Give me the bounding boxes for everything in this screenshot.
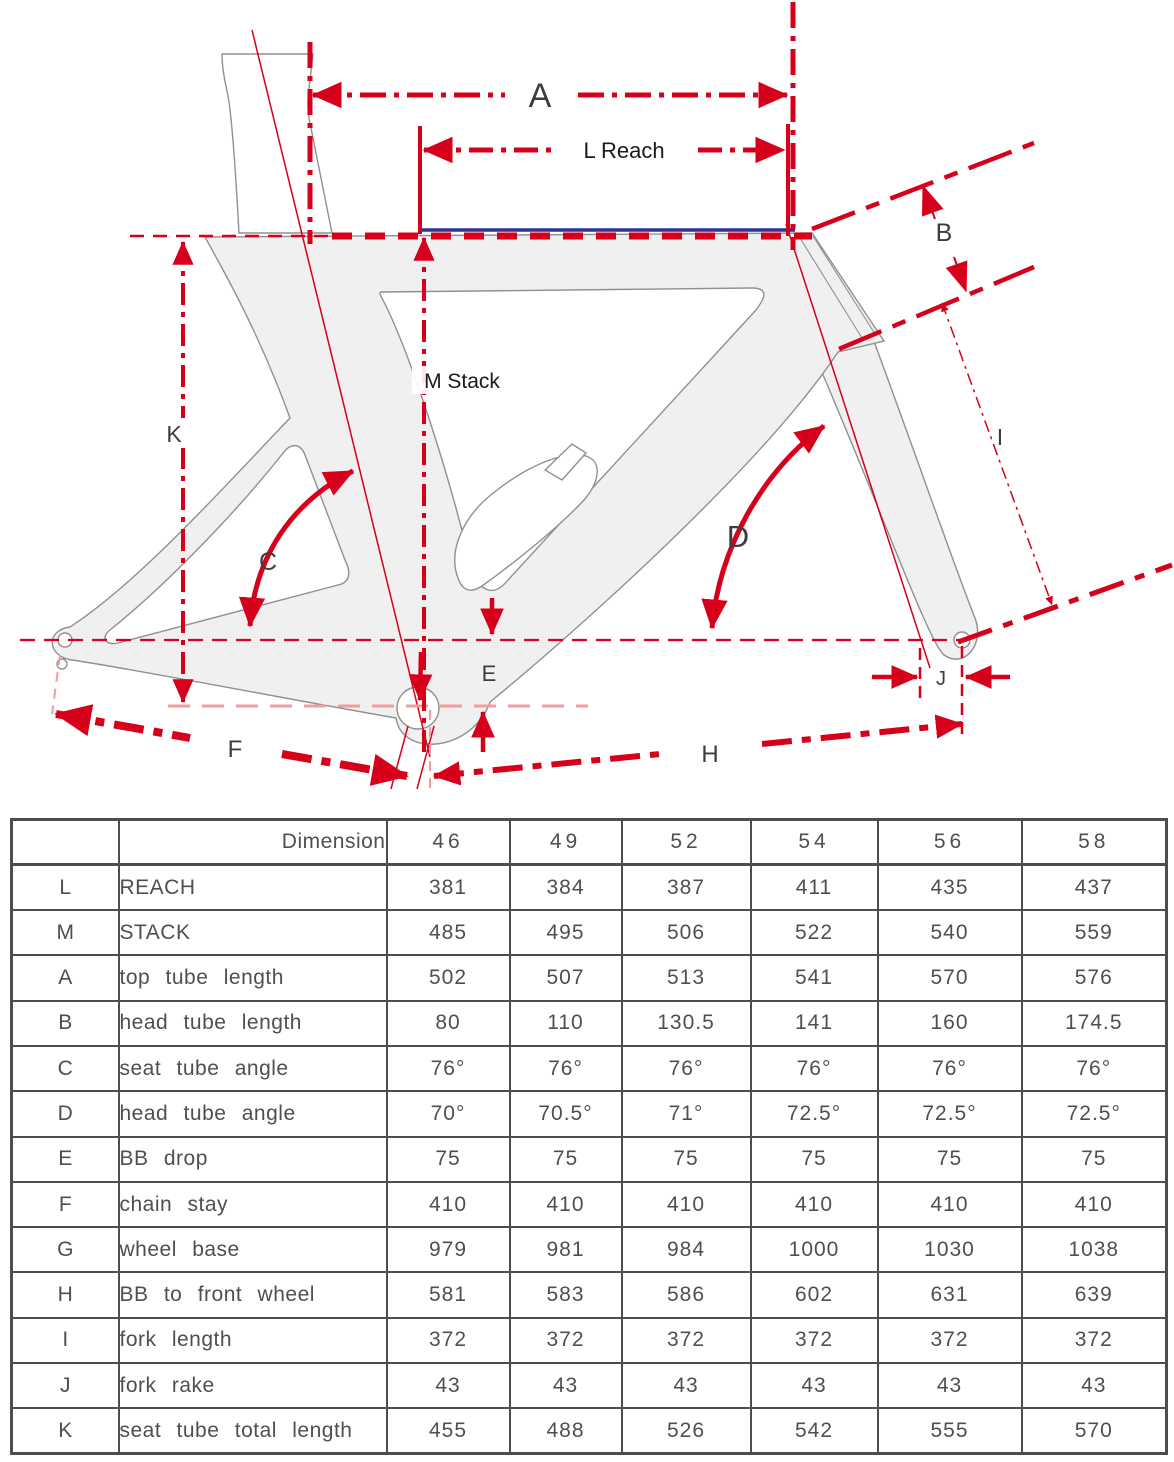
value-cell: 555 xyxy=(878,1408,1022,1453)
value-cell: 76° xyxy=(1022,1046,1167,1091)
row-label: chain stay xyxy=(119,1182,387,1227)
seat-post xyxy=(222,54,332,233)
value-cell: 372 xyxy=(387,1318,510,1363)
value-cell: 542 xyxy=(751,1408,878,1453)
h-dim-right xyxy=(762,724,962,744)
value-cell: 76° xyxy=(751,1046,878,1091)
value-cell: 485 xyxy=(387,910,510,955)
value-cell: 174.5 xyxy=(1022,1001,1167,1046)
b-arrow-lower xyxy=(954,257,966,291)
frame-body xyxy=(52,233,884,744)
value-cell: 435 xyxy=(878,865,1022,910)
value-cell: 639 xyxy=(1022,1272,1167,1317)
table-row: Fchain stay410410410410410410 xyxy=(12,1182,1167,1227)
value-cell: 631 xyxy=(878,1272,1022,1317)
label-J: J xyxy=(936,668,946,690)
row-label: seat tube total length xyxy=(119,1408,387,1453)
i-dim-line xyxy=(942,303,1052,605)
table-row: LREACH381384387411435437 xyxy=(12,865,1167,910)
header-corner-cell xyxy=(12,820,119,865)
value-cell: 372 xyxy=(1022,1318,1167,1363)
row-label: REACH xyxy=(119,865,387,910)
value-cell: 372 xyxy=(751,1318,878,1363)
value-cell: 372 xyxy=(622,1318,751,1363)
value-cell: 75 xyxy=(387,1137,510,1182)
value-cell: 71° xyxy=(622,1091,751,1136)
value-cell: 410 xyxy=(1022,1182,1167,1227)
header-size-cell: 46 xyxy=(387,820,510,865)
value-cell: 70° xyxy=(387,1091,510,1136)
row-label: top tube length xyxy=(119,955,387,1000)
table-row: Bhead tube length80110130.5141160174.5 xyxy=(12,1001,1167,1046)
value-cell: 381 xyxy=(387,865,510,910)
value-cell: 43 xyxy=(1022,1363,1167,1408)
value-cell: 506 xyxy=(622,910,751,955)
row-label: STACK xyxy=(119,910,387,955)
value-cell: 110 xyxy=(510,1001,622,1046)
value-cell: 80 xyxy=(387,1001,510,1046)
row-label: seat tube angle xyxy=(119,1046,387,1091)
fork-blade xyxy=(808,336,978,659)
value-cell: 526 xyxy=(622,1408,751,1453)
value-cell: 410 xyxy=(878,1182,1022,1227)
spec-table: Dimension 46 49 52 54 56 58 LREACH381384… xyxy=(10,818,1168,1455)
value-cell: 43 xyxy=(622,1363,751,1408)
axle-perp-line xyxy=(958,565,1172,642)
value-cell: 384 xyxy=(510,865,622,910)
label-K: K xyxy=(166,421,182,447)
value-cell: 502 xyxy=(387,955,510,1000)
value-cell: 984 xyxy=(622,1227,751,1272)
value-cell: 583 xyxy=(510,1272,622,1317)
f-dim-left xyxy=(56,714,190,738)
table-row: Dhead tube angle70°70.5°71°72.5°72.5°72.… xyxy=(12,1091,1167,1136)
value-cell: 1038 xyxy=(1022,1227,1167,1272)
value-cell: 1000 xyxy=(751,1227,878,1272)
b-line-lower xyxy=(839,267,1034,349)
row-label: head tube angle xyxy=(119,1091,387,1136)
value-cell: 75 xyxy=(751,1137,878,1182)
value-cell: 410 xyxy=(622,1182,751,1227)
row-letter: F xyxy=(12,1182,119,1227)
row-letter: L xyxy=(12,865,119,910)
table-row: Cseat tube angle76°76°76°76°76°76° xyxy=(12,1046,1167,1091)
value-cell: 130.5 xyxy=(622,1001,751,1046)
table-row: EBB drop757575757575 xyxy=(12,1137,1167,1182)
value-cell: 437 xyxy=(1022,865,1167,910)
value-cell: 141 xyxy=(751,1001,878,1046)
label-B: B xyxy=(936,219,953,247)
row-label: head tube length xyxy=(119,1001,387,1046)
row-letter: G xyxy=(12,1227,119,1272)
geometry-table-section: Dimension 46 49 52 54 56 58 LREACH381384… xyxy=(10,818,1165,1453)
table-row: HBB to front wheel581583586602631639 xyxy=(12,1272,1167,1317)
value-cell: 43 xyxy=(751,1363,878,1408)
rear-dropout-ext-line xyxy=(52,655,60,714)
row-letter: K xyxy=(12,1408,119,1453)
value-cell: 576 xyxy=(1022,955,1167,1000)
frame-geometry-diagram: A L Reach M Stack B K C D E F H I J xyxy=(0,0,1174,812)
table-row: Ifork length372372372372372372 xyxy=(12,1318,1167,1363)
table-row: Kseat tube total length45548852654255557… xyxy=(12,1408,1167,1453)
header-size-cell: 56 xyxy=(878,820,1022,865)
value-cell: 72.5° xyxy=(878,1091,1022,1136)
label-H: H xyxy=(701,741,718,768)
stack-bb-arrow xyxy=(420,652,421,700)
row-letter: D xyxy=(12,1091,119,1136)
row-letter: H xyxy=(12,1272,119,1317)
value-cell: 43 xyxy=(878,1363,1022,1408)
value-cell: 75 xyxy=(878,1137,1022,1182)
header-size-cell: 49 xyxy=(510,820,622,865)
label-F: F xyxy=(228,736,243,763)
value-cell: 586 xyxy=(622,1272,751,1317)
value-cell: 1030 xyxy=(878,1227,1022,1272)
value-cell: 522 xyxy=(751,910,878,955)
value-cell: 43 xyxy=(510,1363,622,1408)
table-row: Gwheel base979981984100010301038 xyxy=(12,1227,1167,1272)
value-cell: 981 xyxy=(510,1227,622,1272)
row-label: BB to front wheel xyxy=(119,1272,387,1317)
header-dimension-cell: Dimension xyxy=(119,820,387,865)
value-cell: 513 xyxy=(622,955,751,1000)
value-cell: 495 xyxy=(510,910,622,955)
value-cell: 540 xyxy=(878,910,1022,955)
value-cell: 602 xyxy=(751,1272,878,1317)
h-dim-left xyxy=(434,754,660,776)
row-label: BB drop xyxy=(119,1137,387,1182)
row-letter: I xyxy=(12,1318,119,1363)
b-arrow-upper xyxy=(923,186,935,219)
value-cell: 70.5° xyxy=(510,1091,622,1136)
label-reach: L Reach xyxy=(583,138,664,163)
value-cell: 570 xyxy=(878,955,1022,1000)
row-label: fork rake xyxy=(119,1363,387,1408)
header-size-cell: 52 xyxy=(622,820,751,865)
row-label: wheel base xyxy=(119,1227,387,1272)
value-cell: 43 xyxy=(387,1363,510,1408)
value-cell: 75 xyxy=(510,1137,622,1182)
row-letter: M xyxy=(12,910,119,955)
geometry-drawing: A L Reach M Stack B K C D E F H I J xyxy=(0,0,1174,812)
value-cell: 372 xyxy=(878,1318,1022,1363)
value-cell: 75 xyxy=(622,1137,751,1182)
label-C: C xyxy=(259,548,277,576)
header-size-cell: 58 xyxy=(1022,820,1167,865)
value-cell: 76° xyxy=(622,1046,751,1091)
row-label: fork length xyxy=(119,1318,387,1363)
value-cell: 410 xyxy=(751,1182,878,1227)
f-dim-right xyxy=(282,754,407,776)
value-cell: 72.5° xyxy=(1022,1091,1167,1136)
value-cell: 160 xyxy=(878,1001,1022,1046)
value-cell: 559 xyxy=(1022,910,1167,955)
row-letter: C xyxy=(12,1046,119,1091)
value-cell: 488 xyxy=(510,1408,622,1453)
row-letter: J xyxy=(12,1363,119,1408)
label-D: D xyxy=(727,519,749,554)
label-E: E xyxy=(482,661,497,686)
label-stack: M Stack xyxy=(424,370,500,393)
row-letter: E xyxy=(12,1137,119,1182)
value-cell: 410 xyxy=(387,1182,510,1227)
value-cell: 72.5° xyxy=(751,1091,878,1136)
value-cell: 979 xyxy=(387,1227,510,1272)
row-letter: B xyxy=(12,1001,119,1046)
table-row: Jfork rake434343434343 xyxy=(12,1363,1167,1408)
spec-table-body: Dimension 46 49 52 54 56 58 LREACH381384… xyxy=(12,820,1167,1454)
table-header-row: Dimension 46 49 52 54 56 58 xyxy=(12,820,1167,865)
value-cell: 387 xyxy=(622,865,751,910)
value-cell: 76° xyxy=(878,1046,1022,1091)
value-cell: 570 xyxy=(1022,1408,1167,1453)
label-A: A xyxy=(529,77,552,115)
table-row: Atop tube length502507513541570576 xyxy=(12,955,1167,1000)
value-cell: 372 xyxy=(510,1318,622,1363)
value-cell: 411 xyxy=(751,865,878,910)
value-cell: 75 xyxy=(1022,1137,1167,1182)
value-cell: 410 xyxy=(510,1182,622,1227)
table-row: MSTACK485495506522540559 xyxy=(12,910,1167,955)
value-cell: 541 xyxy=(751,955,878,1000)
value-cell: 581 xyxy=(387,1272,510,1317)
header-size-cell: 54 xyxy=(751,820,878,865)
label-I: I xyxy=(997,424,1003,450)
value-cell: 455 xyxy=(387,1408,510,1453)
value-cell: 76° xyxy=(510,1046,622,1091)
value-cell: 507 xyxy=(510,955,622,1000)
value-cell: 76° xyxy=(387,1046,510,1091)
row-letter: A xyxy=(12,955,119,1000)
